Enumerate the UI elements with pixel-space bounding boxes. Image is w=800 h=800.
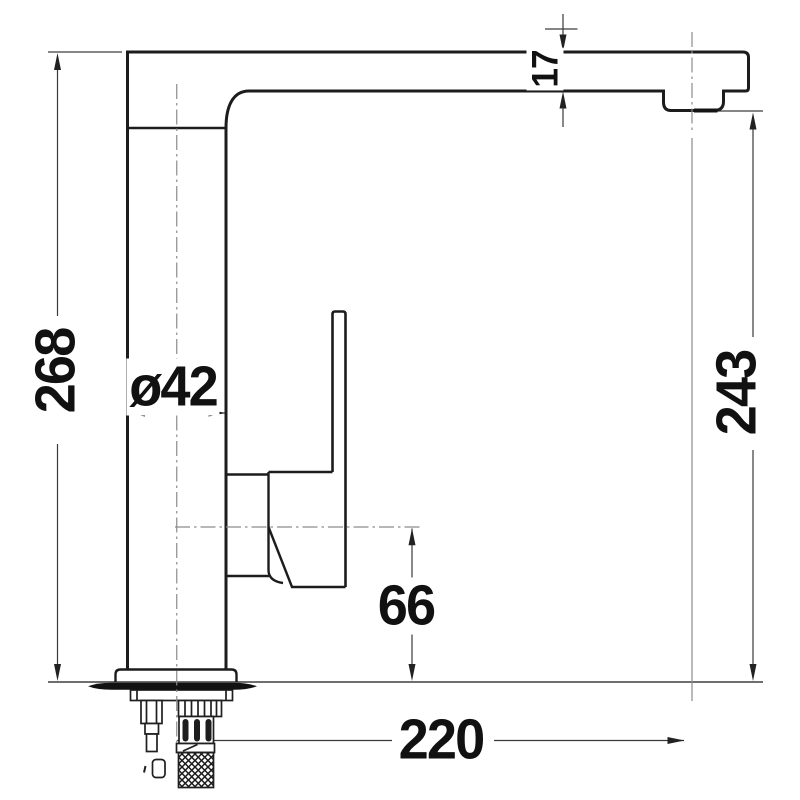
fixing-stud-rod-lower <box>147 734 158 752</box>
handle-cap-slant <box>269 527 346 587</box>
dim-label-spout-outlet-height: 243 <box>709 348 766 438</box>
body-silhouette <box>128 52 749 670</box>
faucet-technical-drawing: 268 243 17 ø42 66 220 <box>0 0 800 800</box>
base-flange <box>116 670 237 683</box>
base-gasket <box>88 683 257 690</box>
dim-label-body-diameter: ø42 <box>126 359 219 416</box>
dim-label-spout-reach: 220 <box>396 712 486 769</box>
braided-hose <box>179 753 214 788</box>
fixing-stud-tip <box>153 760 166 778</box>
mounting-hardware <box>131 690 233 788</box>
fixing-stud-pin <box>144 766 146 773</box>
drawing-linework <box>0 0 800 800</box>
mounting-washer <box>131 690 233 701</box>
dim-label-spout-thickness: 17 <box>527 48 564 91</box>
fixing-stud-hex <box>141 701 162 724</box>
handle-housing-shoulders <box>226 475 269 577</box>
dim-label-handle-axis-height: 66 <box>375 578 437 635</box>
dim-label-overall-height: 268 <box>28 326 85 416</box>
fixing-stud-rod <box>145 724 159 735</box>
handle-lever <box>333 312 346 588</box>
